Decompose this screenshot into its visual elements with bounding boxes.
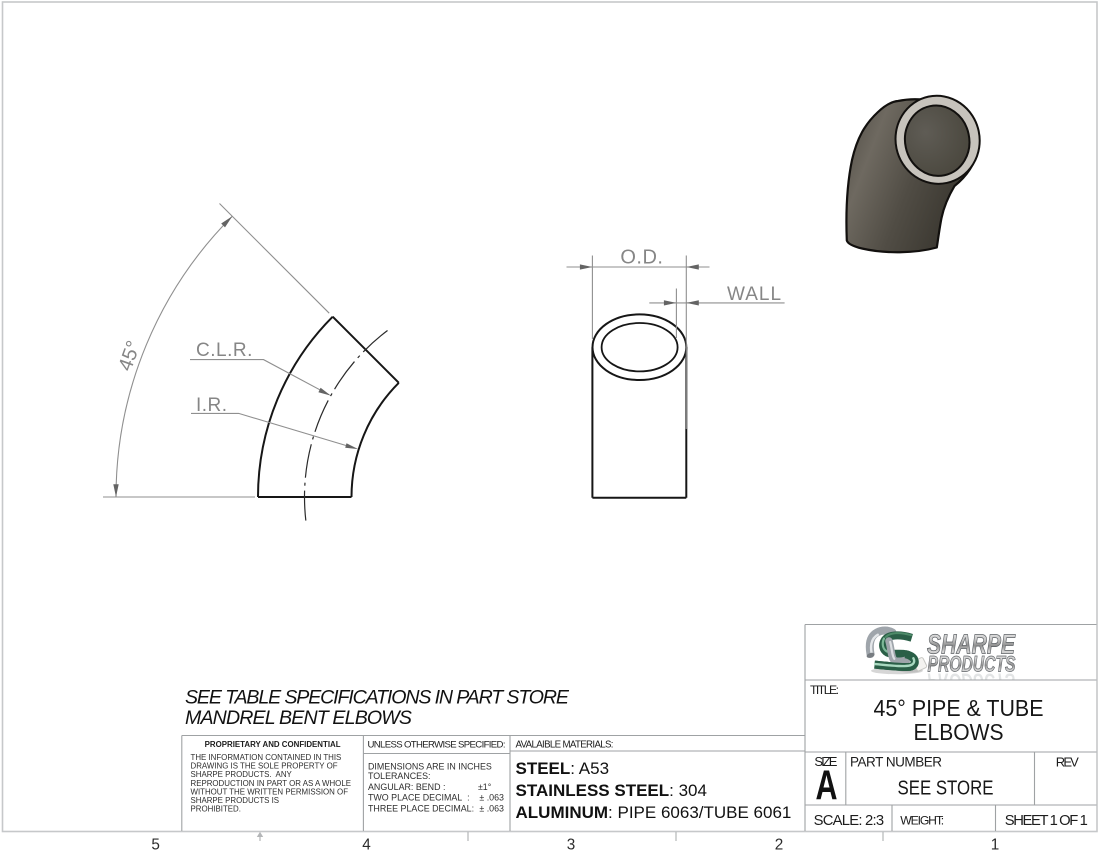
svg-text:2: 2 (775, 837, 784, 850)
svg-text:AVALAIBLE MATERIALS:: AVALAIBLE MATERIALS: (516, 740, 614, 751)
svg-text:DIMENSIONS ARE IN INCHES: DIMENSIONS ARE IN INCHES (368, 762, 492, 772)
svg-text:THREE PLACE DECIMAL:: THREE PLACE DECIMAL: (368, 804, 474, 814)
svg-text:SEE STORE: SEE STORE (898, 778, 994, 800)
svg-text:45° PIPE & TUBE: 45° PIPE & TUBE (874, 695, 1044, 721)
svg-text:WEIGHT:: WEIGHT: (900, 813, 944, 827)
svg-text:STAINLESS STEEL: 304: STAINLESS STEEL: 304 (516, 781, 707, 800)
svg-text:ELBOWS: ELBOWS (914, 719, 1004, 745)
svg-text:1: 1 (991, 837, 1000, 850)
svg-text:PRODUCTS: PRODUCTS (928, 652, 1016, 677)
svg-text:5: 5 (151, 837, 160, 850)
svg-text:± .063: ± .063 (479, 793, 504, 803)
svg-text:PROHIBITED.: PROHIBITED. (191, 805, 241, 814)
svg-text:TITLE:: TITLE: (810, 683, 839, 697)
svg-text:PART NUMBER: PART NUMBER (850, 754, 942, 769)
svg-text:TOLERANCES:: TOLERANCES: (368, 771, 430, 781)
svg-text:SCALE: 2:3: SCALE: 2:3 (814, 813, 885, 829)
svg-text:ALUMINUM: PIPE 6063/TUBE 6061: ALUMINUM: PIPE 6063/TUBE 6061 (516, 803, 792, 822)
svg-text:UNLESS OTHERWISE SPECIFIED:: UNLESS OTHERWISE SPECIFIED: (368, 739, 506, 750)
svg-text:PROPRIETARY AND CONFIDENTIAL: PROPRIETARY AND CONFIDENTIAL (205, 740, 341, 749)
svg-text:± .063: ± .063 (479, 804, 504, 814)
svg-text:4: 4 (362, 837, 371, 850)
svg-text:TWO PLACE DECIMAL :: TWO PLACE DECIMAL : (368, 793, 470, 803)
svg-text:A: A (816, 762, 838, 809)
svg-text:MANDREL BENT ELBOWS: MANDREL BENT ELBOWS (185, 707, 412, 729)
svg-text:SEE TABLE SPECIFICATIONS IN PA: SEE TABLE SPECIFICATIONS IN PART STORE (185, 687, 570, 709)
svg-text:REV: REV (1056, 754, 1079, 769)
svg-text:STEEL: A53: STEEL: A53 (516, 759, 610, 778)
svg-text:ANGULAR: BEND :: ANGULAR: BEND : (368, 782, 445, 792)
svg-text:C.L.R.: C.L.R. (196, 340, 253, 361)
svg-text:O.D.: O.D. (620, 247, 663, 269)
svg-text:3: 3 (567, 837, 576, 850)
svg-text:SHEET 1 OF 1: SHEET 1 OF 1 (1005, 813, 1088, 829)
svg-text:±1°: ±1° (478, 782, 492, 792)
svg-text:WALL: WALL (727, 284, 782, 305)
